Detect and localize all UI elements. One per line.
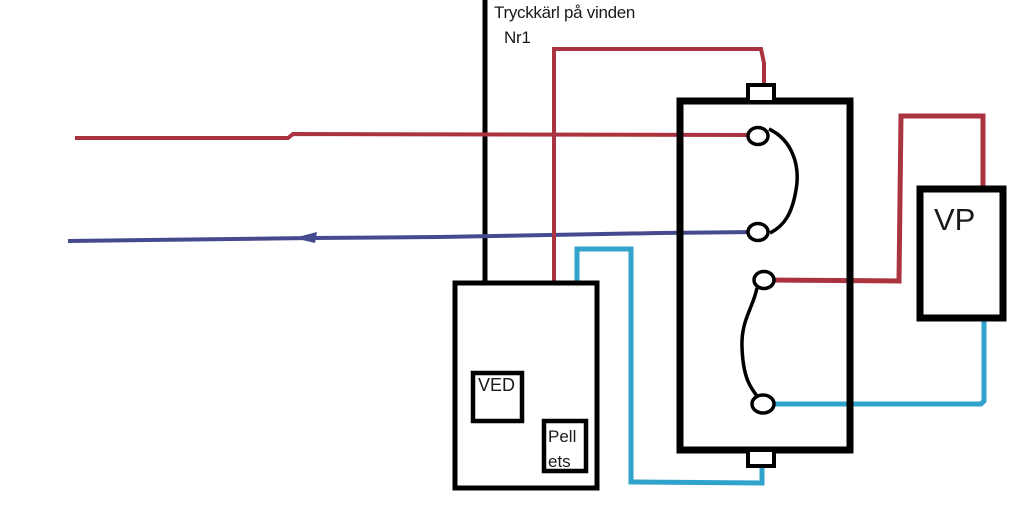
heat-pump-label: VP [934,201,975,238]
boiler-pellets-label: Pell ets [548,424,576,474]
tank-port-lower-cold [752,395,774,413]
attic-vessel-label-line1: Tryckkärl på vinden [494,3,635,23]
tank-lower-coil-curve [742,288,757,396]
tank-upper-coil-curve [769,129,797,233]
piping-diagram: Tryckkärl på vinden Nr1 VED Pell ets VP [0,0,1036,507]
attic-vessel-label-line2: Nr1 [504,28,531,48]
heatpump-to-tank-cold-line [764,318,984,404]
tank-port-middle-hot [754,272,774,289]
hot-supply-line [75,134,757,138]
boiler-wood-label: VED [478,375,515,397]
boiler-pellets-label-line1: Pell [548,424,576,449]
tank-bottom-nub [748,450,774,466]
return-flow-arrow [294,232,317,243]
diagram-canvas [0,0,1036,507]
tank-port-upper-return [748,224,768,241]
tank-port-upper-hot [748,128,768,145]
boiler-pellets-label-line2: ets [548,449,576,474]
return-line [68,232,757,241]
tank-top-nub [748,85,774,102]
